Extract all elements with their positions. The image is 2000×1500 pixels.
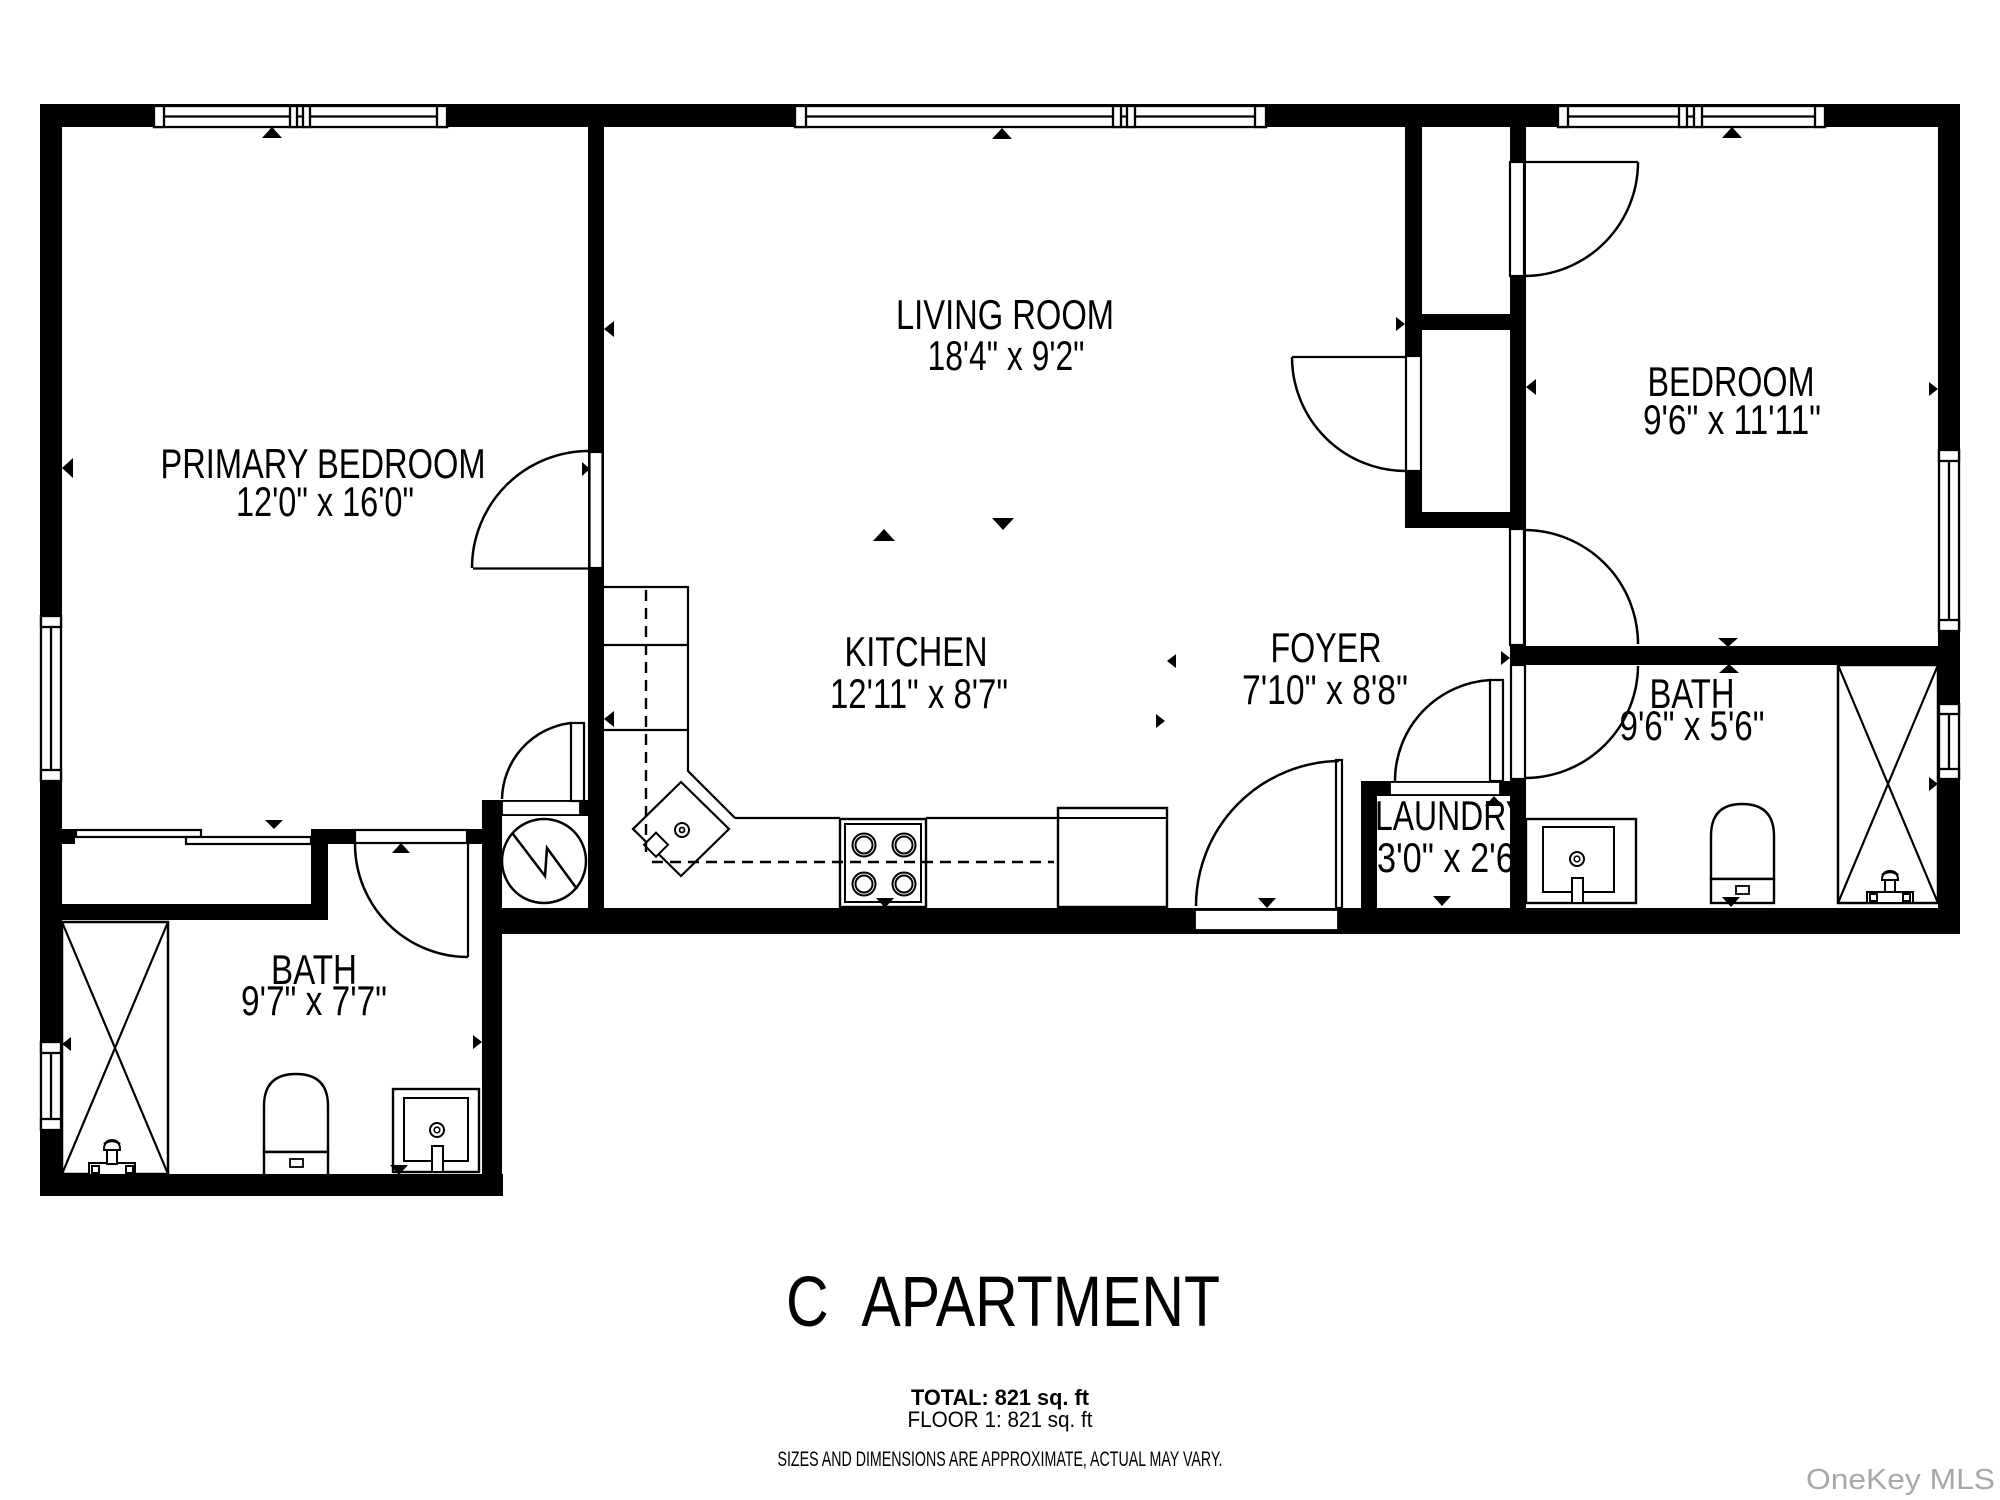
svg-text:18'4" x 9'2": 18'4" x 9'2" [928, 332, 1085, 379]
svg-text:SIZES AND DIMENSIONS ARE APPRO: SIZES AND DIMENSIONS ARE APPROXIMATE, AC… [778, 1448, 1223, 1471]
svg-text:12'11" x 8'7": 12'11" x 8'7" [830, 670, 1008, 717]
svg-text:C APARTMENT: C APARTMENT [786, 1263, 1220, 1342]
svg-text:9'7" x 7'7": 9'7" x 7'7" [241, 977, 387, 1024]
svg-text:LAUNDRY: LAUNDRY [1375, 792, 1527, 839]
svg-text:7'10" x 8'8": 7'10" x 8'8" [1242, 666, 1408, 713]
svg-text:FOYER: FOYER [1271, 624, 1382, 671]
svg-text:12'0" x 16'0": 12'0" x 16'0" [236, 478, 414, 525]
svg-text:9'6" x 11'11": 9'6" x 11'11" [1643, 396, 1821, 443]
svg-text:LIVING ROOM: LIVING ROOM [896, 291, 1114, 338]
svg-text:KITCHEN: KITCHEN [845, 628, 988, 675]
svg-text:OneKey MLS: OneKey MLS [1806, 1464, 1995, 1496]
svg-text:FLOOR 1: 821 sq. ft: FLOOR 1: 821 sq. ft [908, 1407, 1093, 1432]
svg-text:3'0" x 2'6": 3'0" x 2'6" [1377, 834, 1527, 881]
svg-text:9'6" x 5'6": 9'6" x 5'6" [1620, 702, 1765, 749]
